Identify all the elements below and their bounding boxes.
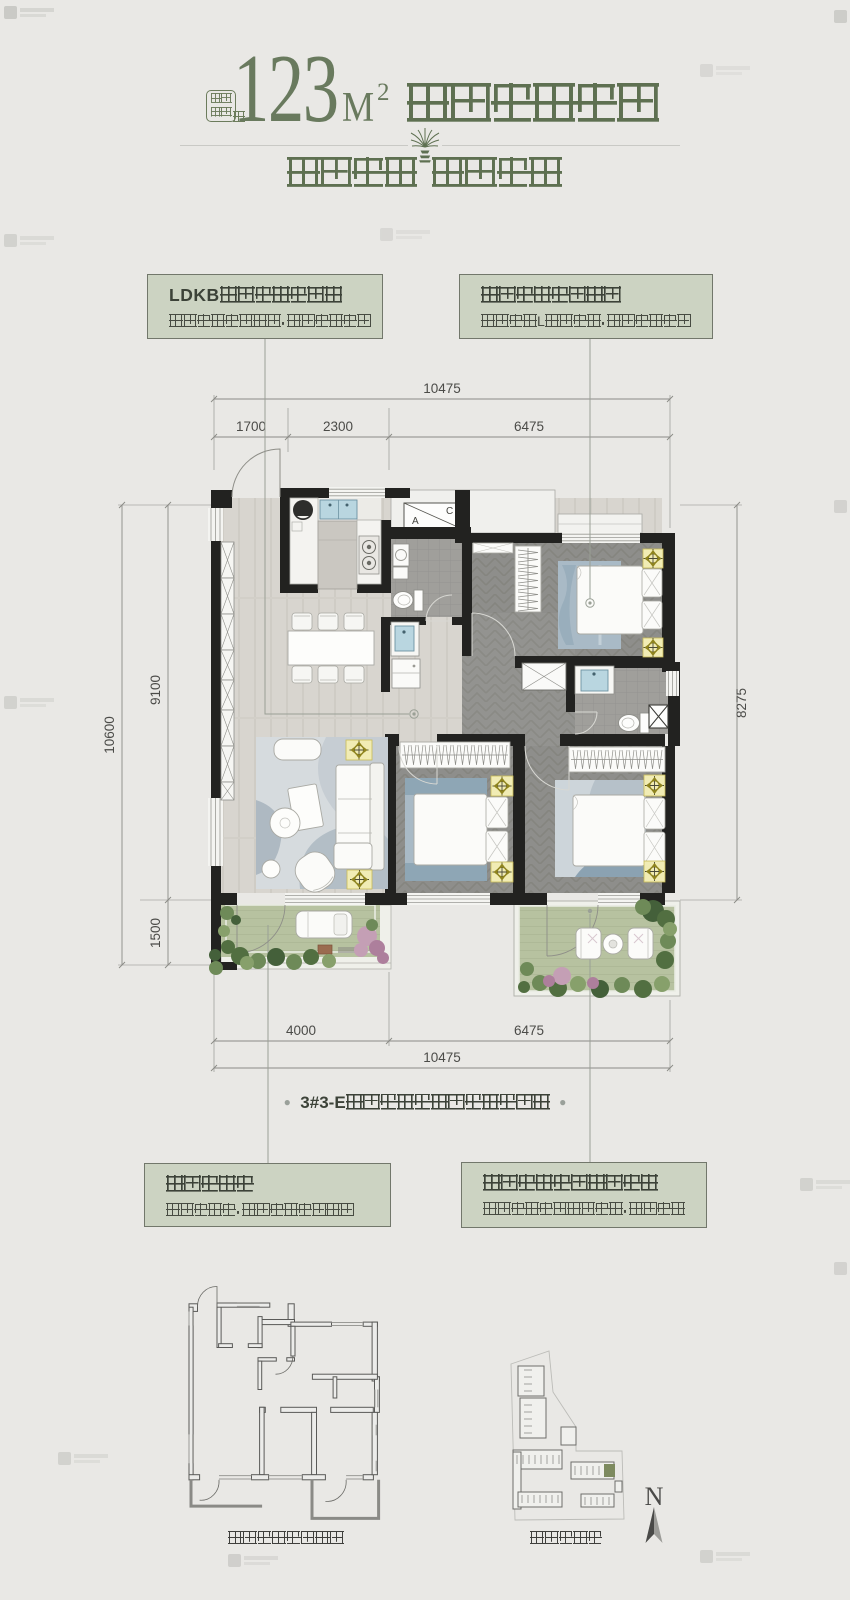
svg-text:10475: 10475	[423, 1050, 461, 1065]
svg-text:4000: 4000	[286, 1023, 316, 1038]
svg-text:10475: 10475	[423, 381, 461, 396]
svg-text:A: A	[412, 516, 419, 527]
svg-text:10600: 10600	[102, 716, 117, 754]
svg-text:6475: 6475	[514, 419, 544, 434]
svg-text:1500: 1500	[148, 918, 163, 948]
svg-text:9100: 9100	[148, 675, 163, 705]
svg-text:1700: 1700	[236, 419, 266, 434]
svg-text:6475: 6475	[514, 1023, 544, 1038]
svg-text:C: C	[446, 506, 453, 517]
svg-text:8275: 8275	[734, 688, 749, 718]
svg-text:2300: 2300	[323, 419, 353, 434]
svg-text:N: N	[645, 1482, 664, 1511]
